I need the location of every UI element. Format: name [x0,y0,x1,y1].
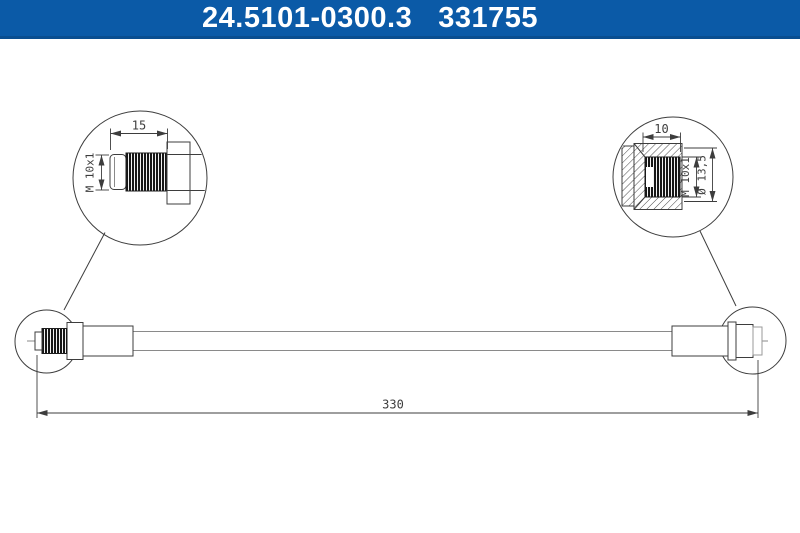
right-fitting-bore [753,327,762,355]
left-detail-thread [126,153,167,191]
left-detail-thread-dimension [96,155,110,190]
left-detail-balloon: 15 M 10x1 [64,111,214,310]
right-fitting-sleeve [672,326,728,356]
left-detail-hex-nut [167,142,190,204]
left-fitting-thread [42,329,67,354]
left-fitting-sleeve [83,326,133,356]
right-fitting-nut-flange [728,322,736,360]
overall-length-label: 330 [382,398,404,412]
left-detail-tip [110,155,126,190]
technical-drawing: 15 M 10x1 [0,0,800,533]
left-detail-length-label: 15 [132,119,146,133]
left-detail-body-continuation [190,155,214,191]
right-detail-sleeve-flange [622,146,634,206]
catalog-drawing-page: 24.5101-0300.3 331755 [0,0,800,533]
right-detail-thread-label: M 10x1 [679,157,692,197]
left-leader-line [64,233,105,311]
right-detail-diameter-label: Ø 13,5 [696,155,709,195]
right-fitting [672,322,762,360]
left-fitting-hex-nut [67,323,83,360]
left-detail-thread-label: M 10x1 [84,153,97,193]
right-leader-line [700,231,736,306]
right-detail-length-label: 10 [654,122,668,136]
right-fitting-nut-body [736,325,753,358]
left-fitting-tip [35,332,42,350]
left-fitting [35,323,133,360]
right-detail-balloon: 10 M 10x1 Ø 13,5 [613,117,736,306]
main-view: 330 [15,307,786,418]
hose-tube [133,332,672,351]
